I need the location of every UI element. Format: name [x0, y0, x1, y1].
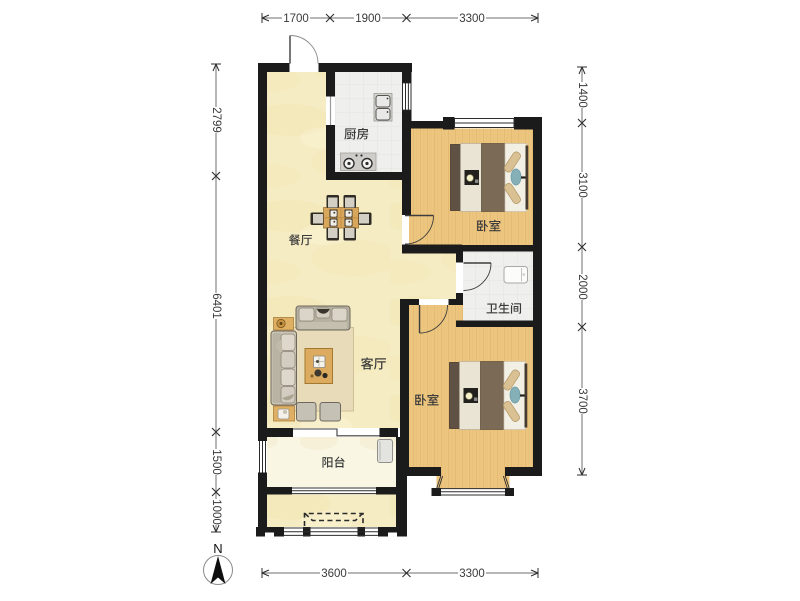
svg-text:1500: 1500 — [210, 449, 222, 475]
svg-text:1900: 1900 — [355, 13, 381, 25]
svg-text:1000: 1000 — [210, 499, 222, 525]
svg-text:1400: 1400 — [576, 82, 588, 108]
svg-text:2799: 2799 — [210, 107, 222, 133]
svg-text:3600: 3600 — [321, 568, 347, 580]
svg-text:6401: 6401 — [210, 293, 222, 319]
svg-text:3700: 3700 — [576, 388, 588, 414]
svg-text:3300: 3300 — [459, 568, 485, 580]
svg-text:1700: 1700 — [283, 13, 309, 25]
svg-text:2000: 2000 — [576, 274, 588, 300]
svg-text:3300: 3300 — [459, 13, 485, 25]
svg-text:3100: 3100 — [576, 172, 588, 198]
svg-text:N: N — [213, 541, 222, 556]
